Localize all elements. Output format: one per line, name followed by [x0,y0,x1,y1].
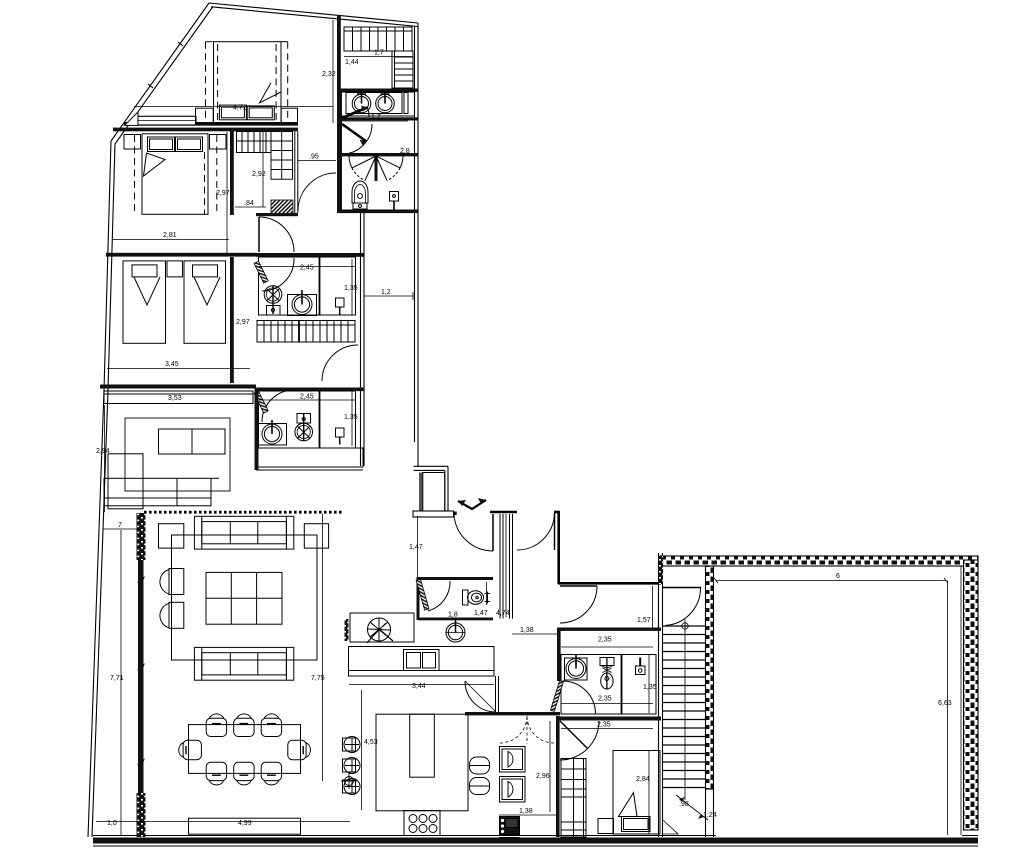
svg-text:7,71: 7,71 [110,675,124,682]
svg-text:3,53: 3,53 [168,395,182,402]
svg-text:2,35: 2,35 [598,637,612,644]
svg-text:2,45: 2,45 [300,265,314,272]
svg-text:2,81: 2,81 [163,232,177,239]
svg-text:1,2: 1,2 [381,289,391,296]
svg-text:1,35: 1,35 [344,414,358,421]
svg-text:2,45: 2,45 [300,394,314,401]
svg-text:2,84: 2,84 [636,776,650,783]
svg-text:1,35: 1,35 [643,684,657,691]
svg-text:2,94: 2,94 [96,448,110,455]
svg-text:4,53: 4,53 [364,739,378,746]
svg-text:.95: .95 [309,154,319,161]
svg-text:1,7: 1,7 [371,114,381,121]
svg-text:1,38: 1,38 [520,627,534,634]
svg-text:1,0: 1,0 [107,820,117,827]
svg-text:3,44: 3,44 [412,683,426,690]
svg-text:.84: .84 [244,200,254,207]
svg-text:1,38: 1,38 [519,808,533,815]
svg-text:6: 6 [836,573,840,580]
svg-text:2,96: 2,96 [536,773,550,780]
svg-text:2,97: 2,97 [216,190,230,197]
svg-text:2,32: 2,32 [322,71,336,78]
svg-text:3,45: 3,45 [165,361,179,368]
svg-text:1,47: 1,47 [474,610,488,617]
svg-text:4,99: 4,99 [238,820,252,827]
svg-text:1,8: 1,8 [448,612,458,619]
svg-text:2,92: 2,92 [252,171,266,178]
svg-text:.98: .98 [679,801,689,808]
svg-text:2,8: 2,8 [400,148,410,155]
svg-text:6,63: 6,63 [938,700,952,707]
svg-text:1,35: 1,35 [344,285,358,292]
svg-text:1,57: 1,57 [637,617,651,624]
svg-text:7: 7 [118,522,122,529]
svg-text:2,35: 2,35 [598,696,612,703]
svg-text:2,97: 2,97 [236,319,250,326]
svg-text:1,7: 1,7 [374,50,384,57]
svg-text:1,24: 1,24 [703,812,717,819]
svg-text:1,47: 1,47 [409,544,423,551]
svg-text:4,71: 4,71 [233,105,247,112]
svg-text:7,75: 7,75 [311,675,325,682]
svg-text:1,44: 1,44 [345,59,359,66]
svg-text:4,74: 4,74 [496,610,510,617]
